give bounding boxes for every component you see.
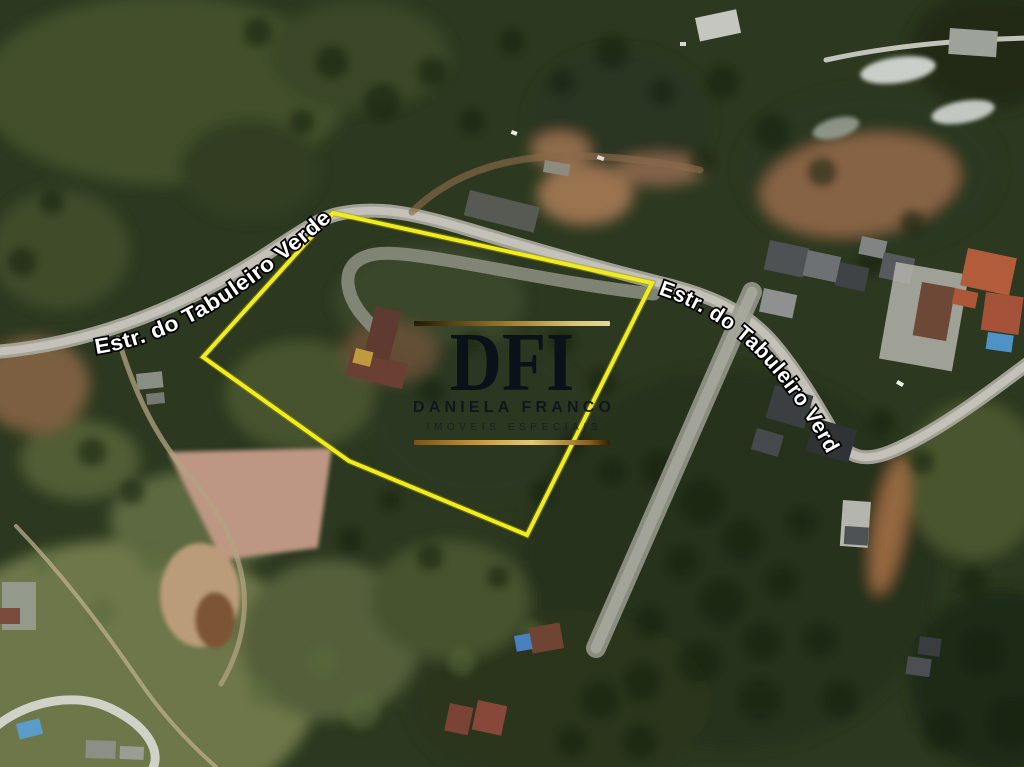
brand-tagline: IMÓVEIS ESPECIAIS [402, 422, 622, 433]
pool-right [986, 332, 1014, 352]
gold-divider-bottom [414, 440, 610, 445]
blue-tarp [514, 633, 533, 652]
brand-monogram: DFI [417, 327, 606, 398]
watermark-logo: DFI DANIELA FRANCO IMÓVEIS ESPECIAIS [402, 321, 622, 445]
satellite-map: Estr. do Tabuleiro Verde Estr. do Tabule… [0, 0, 1024, 767]
